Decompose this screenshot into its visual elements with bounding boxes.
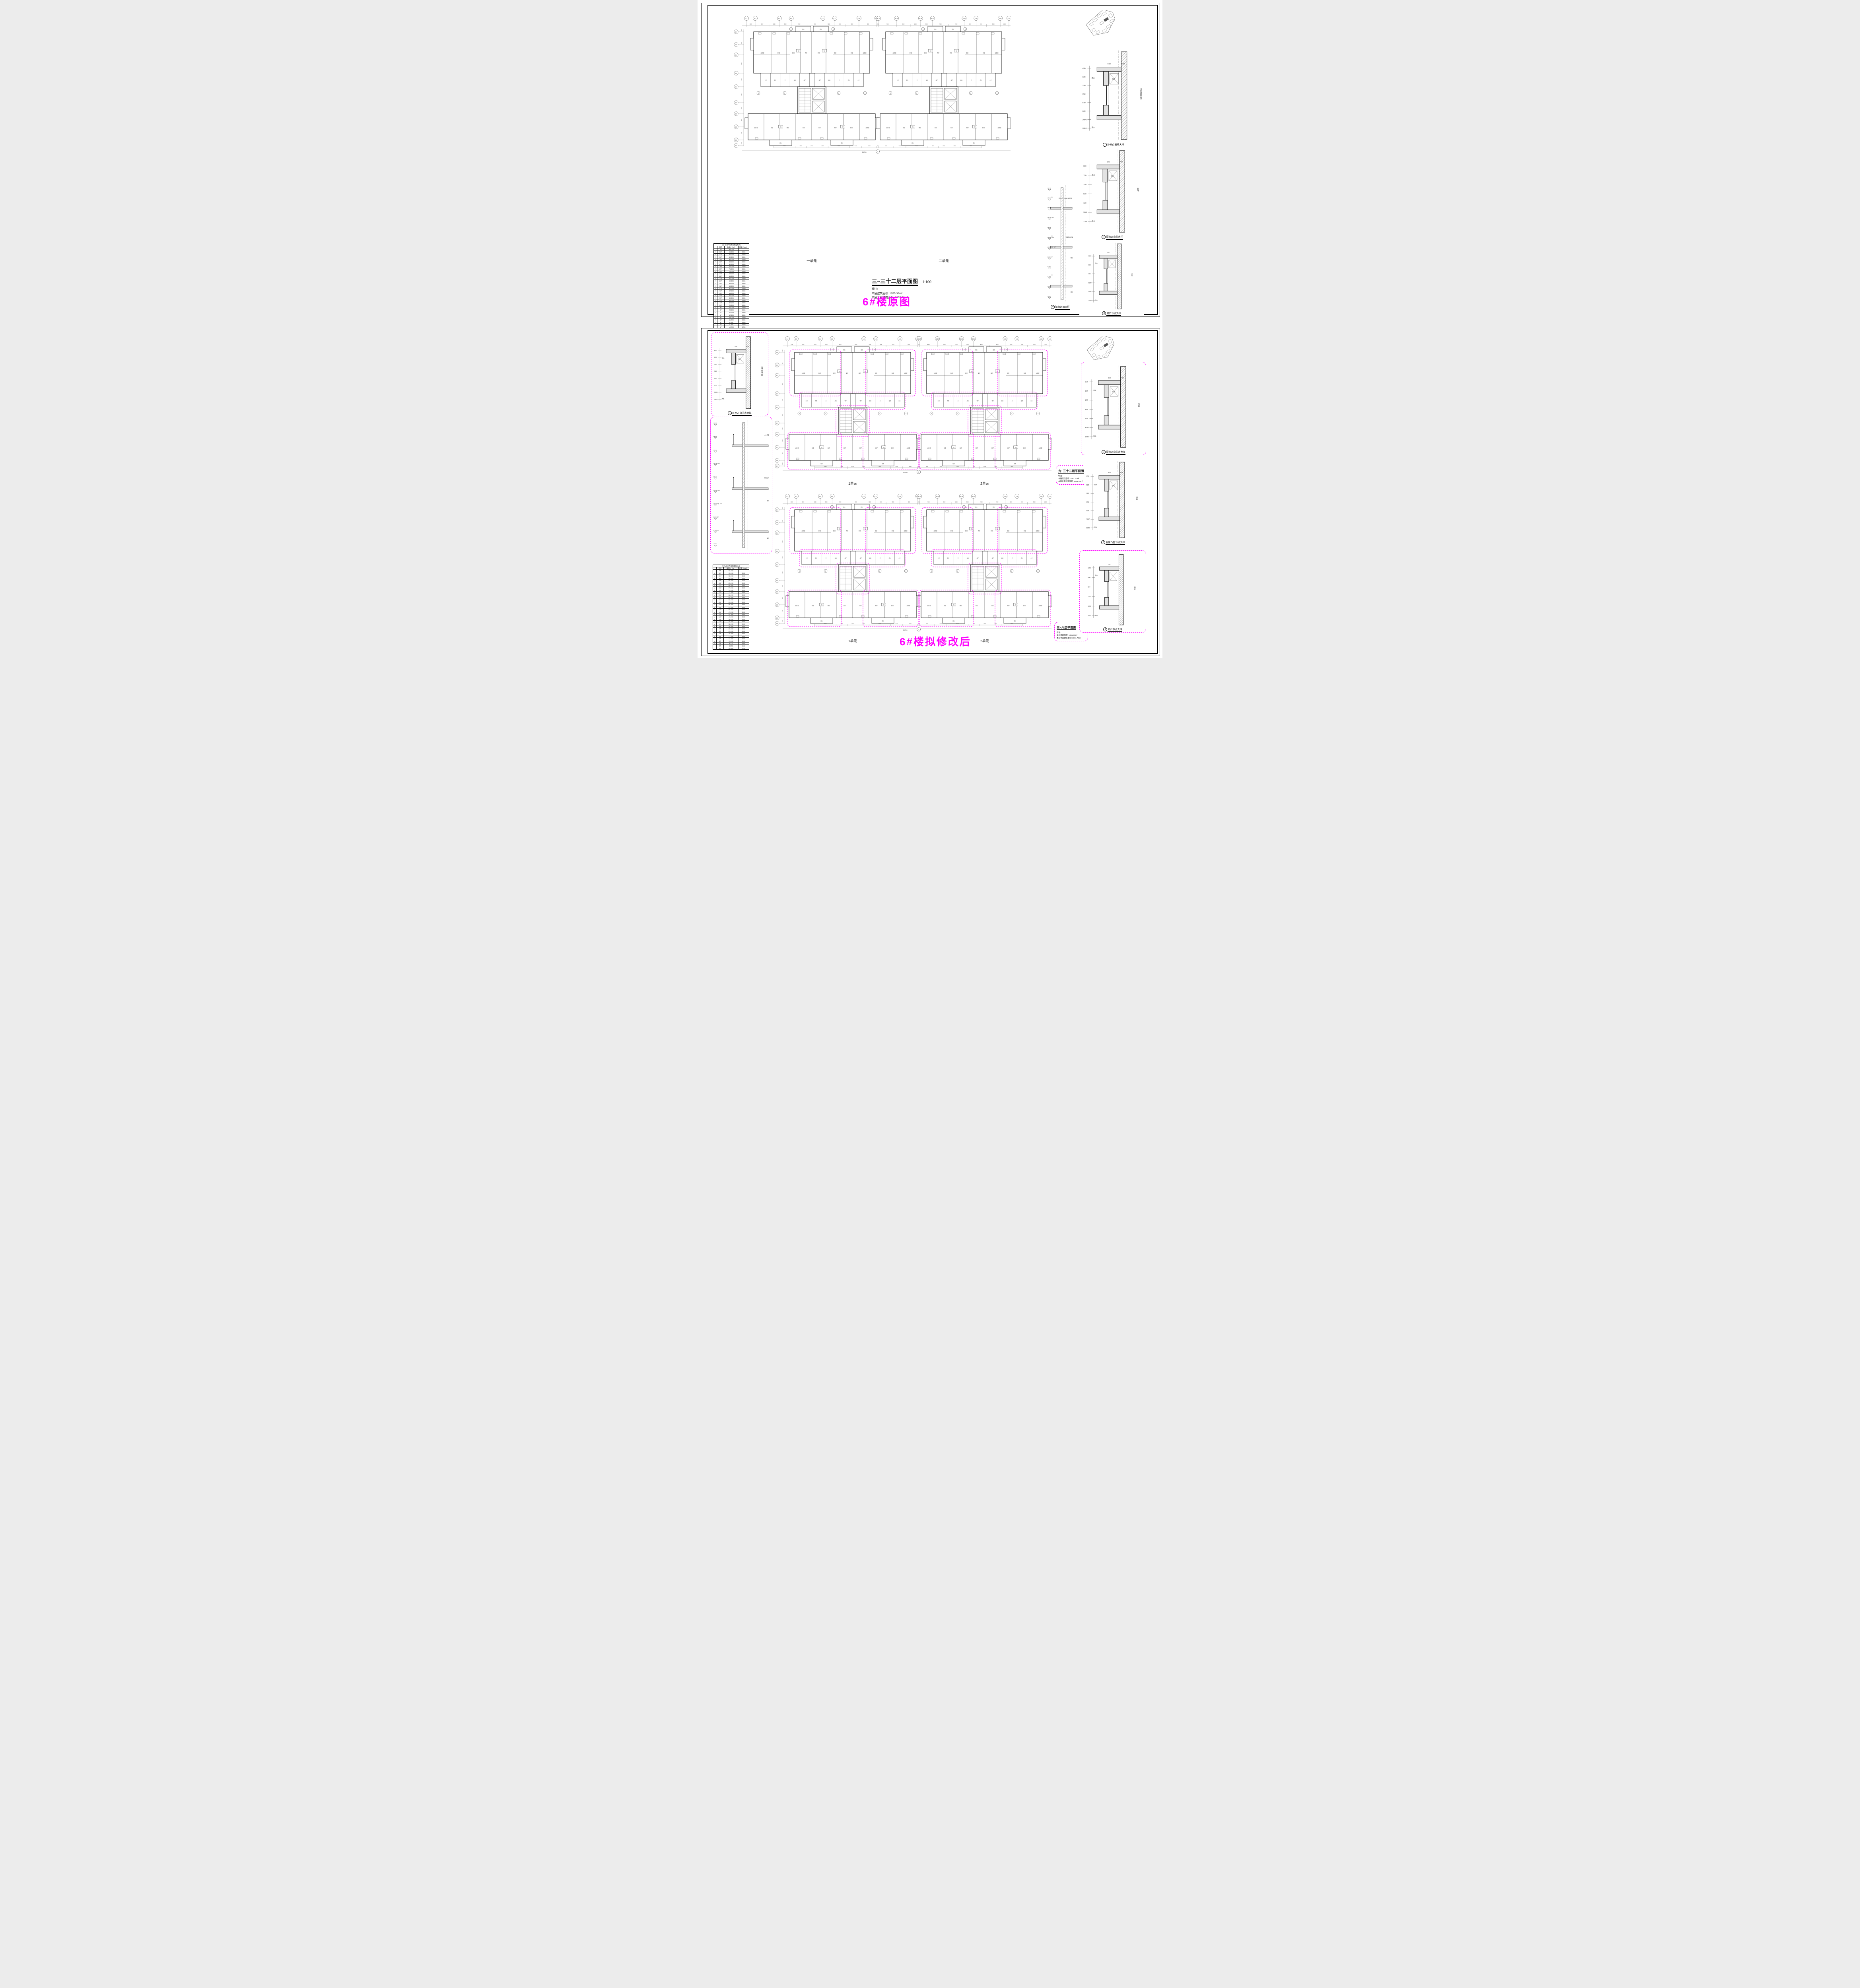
svg-text:阳台: 阳台 (947, 557, 950, 559)
svg-text:3000: 3000 (828, 23, 830, 25)
svg-text:6-45: 6-45 (1049, 338, 1051, 340)
svg-text:客厅: 客厅 (991, 372, 993, 374)
svg-text:厨房: 厨房 (794, 80, 796, 81)
svg-text:3800: 3800 (885, 145, 887, 147)
svg-text:1300: 1300 (1085, 436, 1089, 438)
svg-text:厨房: 厨房 (960, 80, 963, 81)
svg-text:客厅: 客厅 (976, 604, 978, 606)
svg-text:阳台: 阳台 (843, 349, 845, 351)
svg-text:1600: 1600 (741, 93, 742, 96)
svg-text:5: 5 (964, 506, 964, 508)
svg-text:66250: 66250 (903, 629, 908, 631)
svg-text:450: 450 (714, 349, 717, 351)
svg-text:4800: 4800 (782, 540, 783, 543)
svg-text:主卧室(卧室): 主卧室(卧室) (761, 367, 764, 376)
svg-text:卧室: 卧室 (891, 447, 894, 449)
svg-text:4500: 4500 (886, 23, 889, 25)
svg-text:3500: 3500 (892, 501, 894, 503)
node-detail-drawing: 45012033075063012030001800550500主卧室(卧室)滴… (1082, 48, 1145, 142)
svg-text:阳台: 阳台 (820, 463, 823, 464)
svg-text:6-15: 6-15 (863, 496, 865, 497)
svg-text:800: 800 (741, 42, 742, 44)
svg-text:5.200 (2F): 5.200 (2F) (713, 530, 719, 531)
svg-text:6-D: 6-D (776, 447, 779, 448)
svg-text:2700: 2700 (782, 462, 783, 465)
svg-text:6-40: 6-40 (1016, 338, 1018, 340)
svg-text:3500: 3500 (802, 501, 804, 503)
svg-text:6-45: 6-45 (1049, 496, 1051, 497)
detail-caption: 4阳台剖面大样 (1047, 305, 1074, 309)
svg-text:1: 1 (918, 629, 919, 631)
svg-text:客厅: 客厅 (846, 530, 848, 532)
svg-text:2800: 2800 (973, 623, 975, 625)
svg-text:主卫: 主卫 (989, 80, 992, 81)
svg-text:3500: 3500 (943, 344, 946, 346)
svg-text:餐厅: 餐厅 (977, 557, 979, 559)
svg-text:330: 330 (1083, 84, 1086, 87)
floor-plan-original: 2200350026003000400040003000260035004500… (732, 14, 1011, 154)
svg-text:120: 120 (1083, 174, 1086, 176)
svg-text:卧室: 卧室 (903, 126, 905, 128)
svg-text:1300: 1300 (741, 29, 742, 31)
svg-text:主卧室: 主卧室 (795, 604, 799, 606)
svg-text:6-38: 6-38 (963, 18, 966, 19)
svg-text:阳台: 阳台 (861, 507, 863, 508)
svg-text:3100: 3100 (855, 145, 857, 147)
svg-text:2600: 2600 (955, 344, 958, 346)
svg-text:卧室: 卧室 (875, 530, 877, 532)
svg-text:主卫: 主卫 (765, 80, 767, 81)
unit-label: 1单元 (839, 639, 867, 643)
svg-text:700: 700 (1121, 377, 1124, 379)
svg-text:120: 120 (1086, 484, 1089, 486)
svg-text:主卧室: 主卧室 (904, 372, 907, 374)
svg-text:阳台: 阳台 (861, 349, 863, 351)
svg-text:客厅: 客厅 (976, 447, 978, 449)
svg-text:98.650: 98.650 (1048, 197, 1051, 199)
svg-text:3500: 3500 (851, 23, 853, 25)
svg-text:6-F: 6-F (776, 580, 778, 582)
svg-text:630: 630 (1085, 408, 1088, 410)
svg-text:6-2: 6-2 (795, 338, 797, 340)
svg-text:5: 5 (791, 28, 791, 30)
svg-text:3000: 3000 (1083, 118, 1087, 121)
svg-text:2600: 2600 (914, 23, 917, 25)
svg-text:800: 800 (782, 520, 783, 522)
svg-text:4800: 4800 (782, 597, 783, 599)
svg-text:4500: 4500 (867, 23, 869, 25)
svg-text:450: 450 (918, 501, 920, 503)
svg-text:客厅: 客厅 (818, 126, 821, 128)
svg-text:1150: 1150 (1088, 255, 1092, 257)
svg-text:650: 650 (1086, 475, 1089, 477)
svg-text:6-D: 6-D (735, 126, 738, 128)
svg-text:百叶: 百叶 (1112, 485, 1115, 487)
svg-text:1700: 1700 (741, 78, 742, 81)
svg-text:阳台: 阳台 (975, 349, 978, 351)
svg-text:5.300: 5.300 (1048, 276, 1051, 278)
svg-text:阳台: 阳台 (848, 80, 850, 81)
svg-text:餐厅: 餐厅 (860, 400, 862, 402)
svg-text:主卫: 主卫 (857, 80, 860, 81)
svg-text:客厅: 客厅 (859, 530, 861, 532)
svg-text:2800: 2800 (973, 466, 975, 467)
svg-text:卫: 卫 (958, 400, 959, 402)
svg-text:卧室: 卧室 (983, 52, 985, 54)
svg-text:6-23: 6-23 (918, 496, 921, 497)
svg-text:6-2: 6-2 (754, 18, 756, 19)
svg-text:3: 3 (758, 92, 759, 94)
svg-text:1250: 1250 (1088, 596, 1091, 598)
svg-text:4800: 4800 (782, 383, 783, 385)
svg-text:主卧室: 主卧室 (1036, 372, 1039, 374)
svg-text:5: 5 (964, 349, 964, 350)
detail-caption: 2厨房凸窗节大样 (1083, 235, 1142, 239)
svg-text:玻璃栏杆: 玻璃栏杆 (764, 477, 769, 479)
svg-text:6-1: 6-1 (746, 18, 748, 19)
svg-text:3: 3 (1038, 570, 1038, 572)
svg-text:卫: 卫 (971, 80, 972, 81)
svg-text:5: 5 (832, 349, 832, 350)
svg-text:95.200 (32F): 95.200 (32F) (713, 489, 720, 491)
svg-text:滴水: 滴水 (1095, 299, 1098, 301)
svg-text:客厅: 客厅 (935, 126, 937, 128)
svg-text:厨房: 厨房 (828, 80, 831, 81)
svg-text:主卧室: 主卧室 (1038, 604, 1042, 606)
svg-text:滴水: 滴水 (1092, 174, 1095, 176)
svg-text:滴水: 滴水 (1095, 614, 1098, 616)
svg-text:01: 01 (953, 447, 954, 448)
svg-text:卧室: 卧室 (891, 604, 894, 606)
svg-text:厨房: 厨房 (1001, 557, 1004, 559)
svg-text:600: 600 (1088, 577, 1090, 579)
svg-text:@3.000 (5~31F): @3.000 (5~31F) (713, 503, 722, 505)
detail-caption: 1卧室凸窗节大样 (1082, 143, 1145, 147)
svg-text:6.350: 6.350 (1048, 266, 1051, 268)
svg-text:餐厅: 餐厅 (960, 447, 962, 449)
detail-kitchen-bay-window: 65012018063012030001300600700厨房滴水滴水百叶2厨房… (1083, 147, 1142, 239)
svg-text:6-45: 6-45 (1008, 18, 1011, 19)
svg-text:3000: 3000 (714, 391, 718, 393)
note-line: 标注: (872, 287, 931, 292)
svg-text:滴水: 滴水 (1092, 76, 1095, 79)
section-detail-drawing: 99.80098.65098.45098.200 (RF)98.15095.20… (713, 418, 770, 552)
svg-text:700: 700 (1120, 472, 1123, 474)
svg-text:180: 180 (1086, 493, 1089, 495)
svg-text:5.050: 5.050 (1048, 285, 1051, 287)
svg-text:阳台: 阳台 (841, 142, 843, 144)
svg-text:卧室: 卧室 (771, 126, 773, 128)
unit-label: 2单元 (971, 481, 999, 486)
svg-text:客厅: 客厅 (991, 530, 993, 532)
svg-text:800: 800 (782, 610, 783, 612)
svg-text:02: 02 (971, 371, 972, 373)
svg-text:630: 630 (1086, 501, 1089, 503)
section-detail-drawing: 99.70098.65098.45098.200 (RF)98.15095.20… (1047, 183, 1074, 305)
svg-text:餐厅: 餐厅 (834, 126, 837, 128)
svg-text:阳台: 阳台 (1014, 620, 1016, 622)
svg-text:卫: 卫 (1012, 400, 1013, 402)
svg-text:2700: 2700 (983, 623, 986, 625)
svg-text:120: 120 (1086, 510, 1089, 512)
node-detail-drawing: 65012018063012030001300600700厨房滴水滴水百叶 (1083, 147, 1142, 235)
svg-text:6-15: 6-15 (863, 338, 865, 340)
svg-text:主卧室: 主卧室 (927, 604, 931, 606)
svg-text:阳台: 阳台 (889, 400, 891, 402)
svg-text:卫: 卫 (839, 80, 840, 81)
plan-title: 三~八层平面图 (1057, 626, 1076, 630)
svg-text:6-17: 6-17 (875, 496, 877, 497)
svg-text:客厅: 客厅 (937, 52, 939, 54)
svg-text:卧室: 卧室 (1023, 447, 1026, 449)
svg-text:阳台: 阳台 (882, 463, 884, 464)
svg-text:2: 2 (1011, 413, 1012, 414)
svg-text:6-F: 6-F (735, 102, 737, 104)
floor-plan-revised-lower: 2200350026003000400040003000260035004500… (773, 491, 1051, 632)
svg-text:客厅: 客厅 (818, 52, 820, 54)
svg-text:阳台: 阳台 (1021, 400, 1023, 402)
svg-text:98.200 (RF): 98.200 (RF) (713, 463, 720, 464)
svg-text:6-31: 6-31 (972, 496, 975, 497)
svg-text:客厅: 客厅 (1071, 291, 1073, 293)
svg-text:5: 5 (832, 506, 832, 508)
svg-text:3000: 3000 (969, 23, 971, 25)
svg-text:卫: 卫 (1012, 558, 1013, 559)
svg-text:3: 3 (890, 92, 891, 94)
svg-text:5: 5 (965, 28, 966, 30)
svg-text:阳台: 阳台 (912, 142, 914, 144)
svg-text:百叶: 百叶 (739, 358, 741, 360)
detail-kitchen-bay-window-revised: 65012018063012030001300600700厨房滴水滴水百叶2厨房… (1081, 362, 1146, 455)
svg-text:630: 630 (714, 377, 717, 379)
svg-text:厨房: 厨房 (835, 557, 837, 559)
svg-text:330: 330 (714, 363, 717, 365)
svg-text:主卧室: 主卧室 (795, 447, 799, 449)
svg-text:阳台: 阳台 (767, 500, 769, 502)
svg-text:阳台: 阳台 (815, 557, 818, 559)
svg-text:阳台: 阳台 (820, 620, 823, 622)
svg-text:630: 630 (1083, 101, 1086, 104)
detail-caption: 3阳台节点大样 (1081, 627, 1145, 631)
svg-text:1150: 1150 (1088, 567, 1091, 569)
svg-text:6-8: 6-8 (831, 496, 833, 497)
svg-text:01: 01 (780, 126, 781, 128)
svg-text:6-29: 6-29 (960, 338, 963, 340)
svg-text:2: 2 (879, 413, 880, 414)
svg-text:01: 01 (821, 604, 822, 606)
svg-text:3: 3 (799, 413, 800, 414)
svg-text:04: 04 (1015, 447, 1016, 448)
svg-text:客厅: 客厅 (859, 447, 862, 449)
svg-text:滴水: 滴水 (1095, 575, 1098, 577)
svg-text:6-29: 6-29 (960, 496, 963, 497)
svg-text:百叶: 百叶 (1112, 391, 1115, 393)
svg-text:阳台: 阳台 (973, 142, 975, 144)
svg-text:餐厅: 餐厅 (828, 604, 830, 606)
svg-text:4000: 4000 (996, 501, 999, 503)
annotation-original: 6#楼原图 (863, 294, 911, 309)
svg-text:01: 01 (912, 126, 913, 128)
svg-text:99.800: 99.800 (713, 422, 717, 424)
svg-text:2800: 2800 (841, 623, 843, 625)
svg-text:主卧室: 主卧室 (801, 372, 805, 374)
svg-text:3800: 3800 (926, 623, 928, 625)
svg-text:6-J: 6-J (776, 564, 778, 566)
svg-text:6-N: 6-N (776, 509, 778, 511)
svg-text:卫: 卫 (880, 558, 881, 559)
svg-text:卧室: 卧室 (965, 372, 968, 374)
svg-text:卫: 卫 (880, 400, 881, 402)
svg-text:阳台: 阳台 (1131, 274, 1133, 277)
svg-text:6-L: 6-L (776, 375, 778, 377)
svg-text:客厅: 客厅 (978, 530, 980, 532)
svg-text:750: 750 (1083, 93, 1086, 95)
svg-text:2700: 2700 (741, 142, 742, 144)
svg-text:120: 120 (714, 384, 717, 386)
svg-text:3800: 3800 (909, 623, 912, 625)
svg-text:滴水: 滴水 (1093, 390, 1096, 392)
svg-text:3100: 3100 (940, 466, 942, 467)
svg-text:主卫: 主卫 (898, 400, 901, 402)
svg-text:餐厅: 餐厅 (819, 80, 821, 81)
svg-text:客厅: 客厅 (859, 372, 861, 374)
svg-text:卫: 卫 (826, 400, 827, 402)
svg-text:阳台: 阳台 (1134, 586, 1136, 590)
svg-text:6-23: 6-23 (918, 338, 921, 340)
svg-text:4000: 4000 (814, 23, 816, 25)
svg-text:120: 120 (1083, 202, 1086, 204)
svg-text:1500: 1500 (741, 107, 742, 109)
svg-text:2800: 2800 (800, 145, 802, 147)
svg-text:餐厅: 餐厅 (875, 604, 878, 606)
svg-text:2: 2 (957, 413, 958, 414)
svg-text:3000: 3000 (825, 344, 828, 346)
svg-text:客厅: 客厅 (859, 604, 862, 606)
annotation-revised: 6#楼拟修改后 (900, 634, 971, 648)
svg-text:2600: 2600 (839, 23, 841, 25)
svg-text:6-25: 6-25 (895, 18, 898, 19)
svg-text:厨房: 厨房 (1135, 497, 1138, 500)
svg-text:阳台: 阳台 (980, 80, 982, 81)
svg-text:4000: 4000 (980, 501, 983, 503)
svg-text:3000: 3000 (966, 501, 969, 503)
svg-text:阳台: 阳台 (1021, 557, 1023, 559)
svg-text:2: 2 (825, 413, 826, 414)
svg-text:3500: 3500 (802, 344, 804, 346)
svg-text:6-43: 6-43 (1040, 496, 1043, 497)
svg-text:卧室: 卧室 (851, 52, 853, 54)
svg-text:卧室: 卧室 (818, 372, 821, 374)
svg-text:4800: 4800 (741, 119, 742, 121)
svg-text:主卧室: 主卧室 (865, 126, 869, 128)
svg-text:6-M: 6-M (776, 522, 778, 524)
svg-text:3800: 3800 (926, 466, 928, 467)
svg-text:3100: 3100 (896, 466, 898, 467)
svg-text:4.800: 4.800 (1048, 295, 1051, 297)
svg-text:650: 650 (1085, 381, 1088, 383)
svg-text:500: 500 (746, 346, 749, 348)
svg-text:客厅: 客厅 (844, 604, 846, 606)
plan-title: 九~三十二层平面图 (1058, 469, 1084, 474)
svg-text:2: 2 (879, 570, 880, 572)
svg-text:4000: 4000 (798, 23, 801, 25)
svg-text:6-8: 6-8 (831, 338, 833, 340)
svg-text:3000: 3000 (1085, 427, 1089, 429)
svg-text:4000: 4000 (996, 344, 999, 346)
svg-text:630: 630 (1083, 193, 1086, 195)
svg-text:2600: 2600 (1021, 344, 1023, 346)
svg-text:2800: 2800 (954, 145, 956, 147)
svg-text:卧室: 卧室 (777, 52, 780, 54)
svg-text:6-20: 6-20 (858, 18, 861, 19)
svg-text:卧室: 卧室 (924, 52, 927, 54)
svg-text:02: 02 (930, 50, 931, 52)
svg-text:厨房: 厨房 (967, 400, 969, 402)
svg-text:3: 3 (906, 570, 906, 572)
svg-text:3100: 3100 (940, 623, 942, 625)
svg-text:餐厅: 餐厅 (845, 557, 847, 559)
svg-text:66250: 66250 (862, 151, 867, 153)
svg-text:4500: 4500 (908, 501, 910, 503)
detail-bedroom-bay-window-revised: 45012033075063012030001800550500主卧室(卧室)滴… (711, 332, 768, 416)
svg-text:02: 02 (839, 528, 840, 530)
svg-text:3000: 3000 (1083, 211, 1087, 213)
svg-text:阳台: 阳台 (993, 507, 995, 508)
svg-text:1250: 1250 (1088, 282, 1092, 283)
svg-text:3000: 3000 (966, 344, 969, 346)
svg-text:4.550: 4.550 (713, 543, 717, 545)
svg-text:主卧室: 主卧室 (760, 52, 764, 54)
svg-text:4000: 4000 (939, 23, 942, 25)
svg-text:2: 2 (970, 92, 971, 94)
svg-text:6-31: 6-31 (972, 338, 975, 340)
svg-text:04: 04 (883, 604, 884, 606)
svg-text:阳台: 阳台 (815, 400, 818, 402)
svg-text:餐厅: 餐厅 (977, 400, 979, 402)
svg-text:3800: 3800 (868, 145, 871, 147)
svg-text:02: 02 (971, 528, 972, 530)
svg-text:6-17: 6-17 (834, 18, 836, 19)
svg-text:主卫: 主卫 (806, 557, 808, 559)
svg-text:550: 550 (1088, 273, 1091, 275)
svg-text:卧室: 卧室 (944, 604, 946, 606)
detail-caption: 2厨房凸窗节点大样 (1082, 450, 1145, 454)
svg-text:阳台: 阳台 (906, 80, 909, 81)
svg-text:卫: 卫 (958, 558, 959, 559)
svg-text:餐厅: 餐厅 (919, 126, 921, 128)
svg-text:2800: 2800 (862, 466, 865, 467)
svg-text:6-43: 6-43 (1040, 338, 1043, 340)
detail-bedroom-bay-window: 45012033075063012030001800550500主卧室(卧室)滴… (1082, 48, 1145, 147)
svg-text:3500: 3500 (902, 23, 905, 25)
svg-text:卧室: 卧室 (944, 447, 946, 449)
svg-text:5: 5 (1006, 506, 1007, 508)
svg-text:5: 5 (1006, 349, 1007, 350)
svg-text:2: 2 (784, 92, 785, 94)
svg-text:阳台: 阳台 (975, 507, 978, 508)
svg-text:主卧室: 主卧室 (892, 52, 896, 54)
svg-text:6-L: 6-L (735, 54, 737, 56)
svg-text:180: 180 (1083, 184, 1086, 186)
svg-text:餐厅: 餐厅 (787, 126, 789, 128)
unit-label: 二单元 (930, 258, 958, 263)
svg-text:阳台: 阳台 (882, 620, 884, 622)
svg-text:3000: 3000 (784, 23, 787, 25)
node-detail-drawing: 1150600550125011503000200阳台滴水滴水 (1079, 241, 1144, 311)
svg-text:卧室: 卧室 (982, 126, 985, 128)
svg-text:1700: 1700 (782, 556, 783, 559)
detail-caption: 3阳台节点大样 (1079, 311, 1144, 315)
